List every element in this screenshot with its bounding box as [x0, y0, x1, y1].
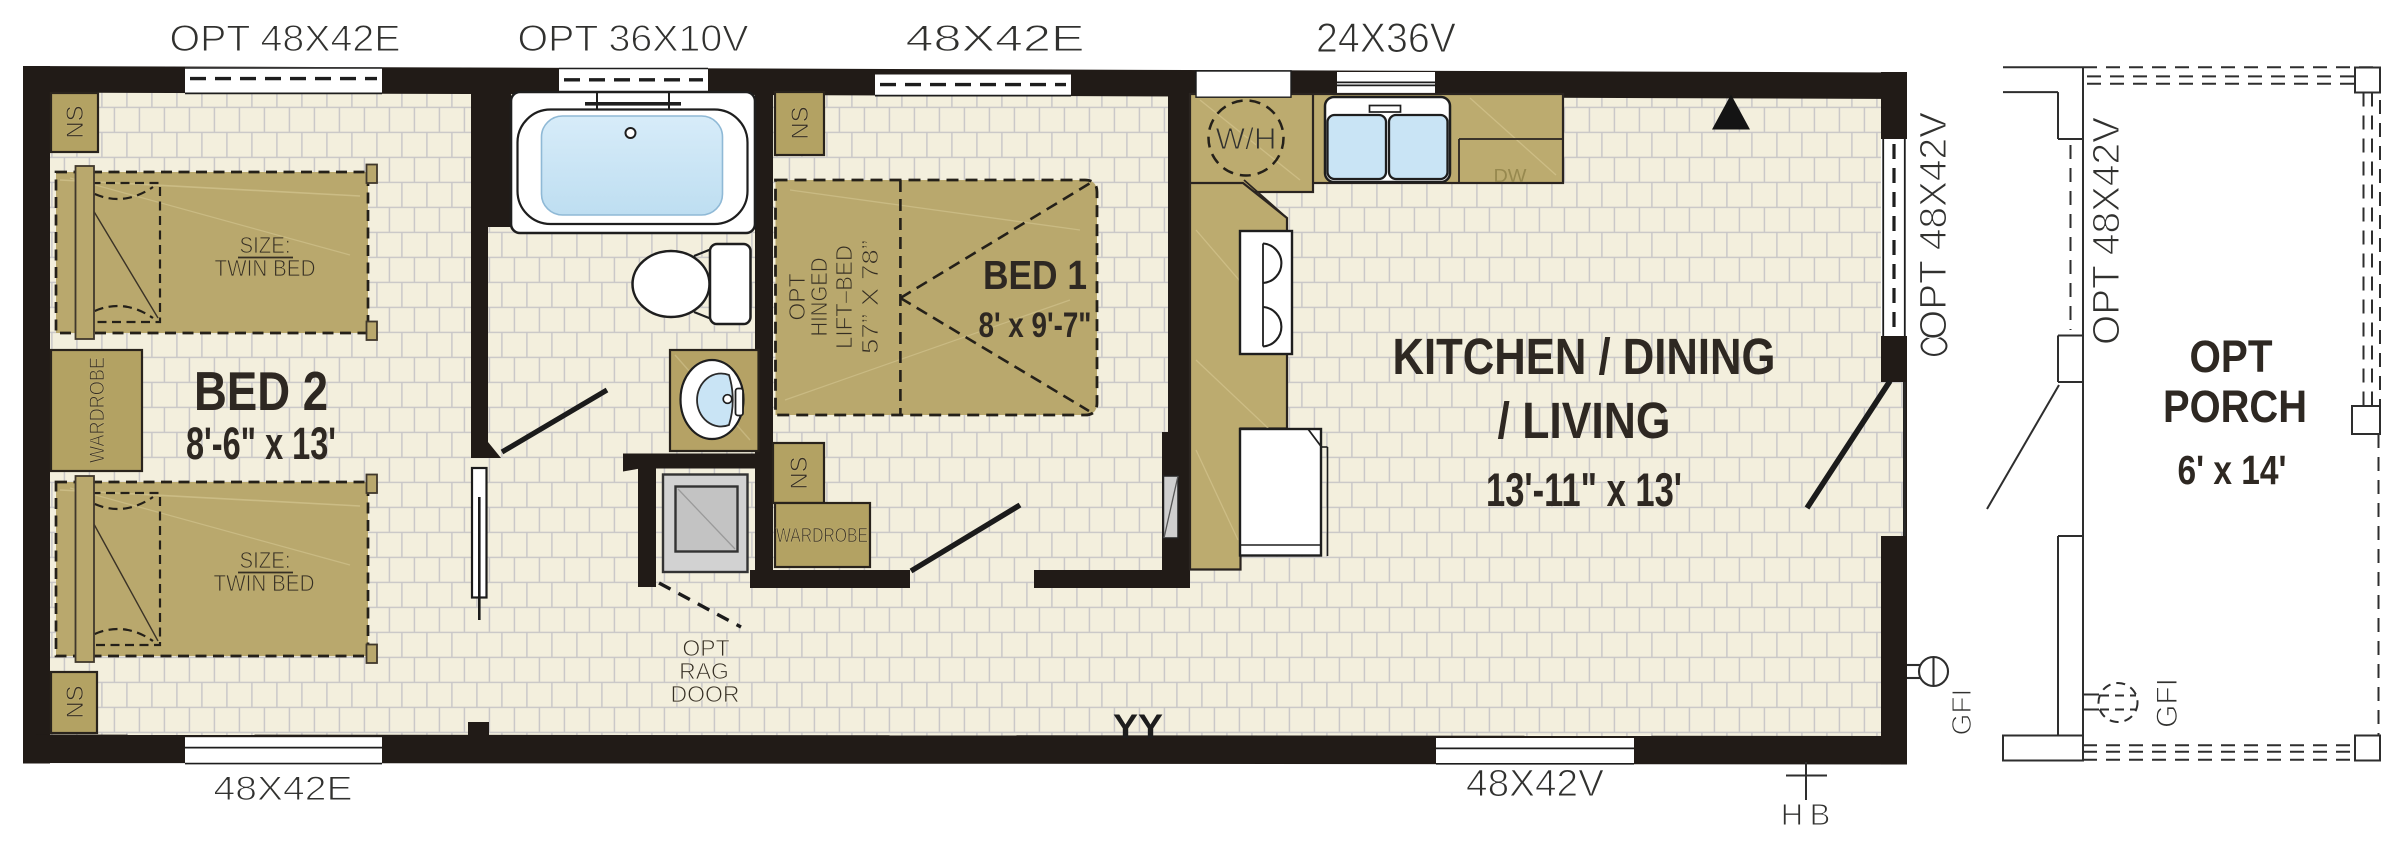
svg-text:48X42E: 48X42E: [906, 18, 1085, 59]
svg-text:13'-11" x 13': 13'-11" x 13': [1486, 463, 1682, 516]
svg-text:B: B: [1810, 797, 1831, 832]
svg-text:DW: DW: [1494, 166, 1527, 186]
svg-text:BED 1: BED 1: [983, 252, 1087, 298]
svg-text:NS: NS: [786, 456, 813, 489]
svg-text:YY: YY: [1113, 708, 1163, 746]
svg-text:H: H: [1781, 797, 1803, 832]
svg-text:KITCHEN / DINING: KITCHEN / DINING: [1393, 328, 1776, 385]
svg-text:48X42V: 48X42V: [1466, 763, 1605, 805]
svg-text:OPT 48X42E: OPT 48X42E: [170, 18, 401, 59]
svg-text:6' x 14': 6' x 14': [2178, 447, 2287, 493]
svg-text:OPT: OPT: [2190, 331, 2273, 382]
svg-text:OPT 48X42V: OPT 48X42V: [2086, 116, 2128, 345]
svg-text:WARDROBE: WARDROBE: [86, 357, 109, 463]
svg-text:GFI: GFI: [1946, 689, 1977, 736]
svg-text:DOOR: DOOR: [671, 681, 740, 707]
svg-text:57” X 78”: 57” X 78”: [857, 240, 883, 354]
svg-text:TWIN BED: TWIN BED: [215, 255, 316, 281]
svg-text:48X42E: 48X42E: [214, 770, 353, 808]
svg-text:8'-6" x 13': 8'-6" x 13': [186, 418, 336, 469]
svg-text:NS: NS: [62, 685, 89, 718]
svg-text:OPT 48X42V: OPT 48X42V: [1913, 111, 1955, 340]
svg-text:NS: NS: [62, 105, 89, 138]
svg-text:LIFT–BED: LIFT–BED: [831, 245, 857, 349]
svg-text:24X36V: 24X36V: [1316, 14, 1456, 61]
svg-text:WARDROBE: WARDROBE: [776, 525, 868, 547]
svg-text:GFI: GFI: [2151, 678, 2184, 728]
svg-text:BED 2: BED 2: [194, 360, 328, 422]
svg-text:HINGED: HINGED: [806, 258, 832, 337]
svg-text:8' x 9'-7": 8' x 9'-7": [979, 306, 1092, 345]
svg-text:OPT 36X10V: OPT 36X10V: [518, 18, 749, 59]
svg-text:PORCH: PORCH: [2163, 381, 2307, 432]
svg-text:/ LIVING: / LIVING: [1498, 392, 1671, 449]
svg-text:TWIN BED: TWIN BED: [214, 570, 315, 596]
svg-text:NS: NS: [787, 106, 814, 139]
svg-text:W/H: W/H: [1216, 121, 1277, 156]
